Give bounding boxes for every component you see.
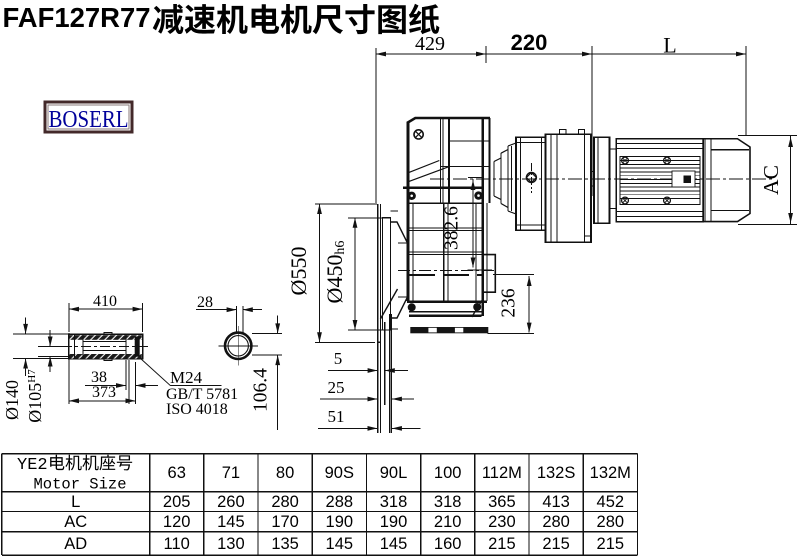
svg-text:112M: 112M [482, 464, 522, 482]
svg-text:145: 145 [326, 535, 354, 553]
svg-text:90S: 90S [325, 464, 354, 482]
svg-text:28: 28 [197, 294, 213, 311]
svg-text:410: 410 [93, 293, 117, 310]
svg-text:Ø450h6: Ø450h6 [322, 241, 348, 304]
svg-text:160: 160 [434, 535, 462, 553]
svg-text:280: 280 [597, 513, 625, 531]
svg-text:51: 51 [328, 407, 345, 426]
svg-text:215: 215 [488, 535, 516, 553]
svg-text:452: 452 [597, 493, 625, 511]
svg-text:145: 145 [217, 513, 245, 531]
svg-text:63: 63 [168, 464, 186, 482]
svg-text:210: 210 [434, 513, 462, 531]
svg-text:Ø140: Ø140 [2, 380, 22, 420]
svg-text:215: 215 [542, 535, 570, 553]
svg-text:413: 413 [542, 493, 570, 511]
svg-text:132M: 132M [590, 464, 631, 482]
svg-text:L: L [71, 493, 80, 511]
svg-text:373: 373 [92, 384, 116, 401]
svg-text:230: 230 [488, 513, 516, 531]
svg-text:L: L [663, 33, 676, 58]
svg-text:100: 100 [434, 464, 462, 482]
svg-text:Motor Size: Motor Size [34, 476, 127, 494]
svg-text:429: 429 [415, 33, 445, 55]
svg-text:318: 318 [380, 493, 408, 511]
svg-text:382.6: 382.6 [442, 206, 463, 250]
svg-text:AC: AC [64, 513, 87, 531]
svg-text:135: 135 [271, 535, 299, 553]
svg-text:Ø550: Ø550 [286, 247, 311, 296]
svg-text:ISO 4018: ISO 4018 [166, 401, 228, 418]
svg-text:BOSERL: BOSERL [49, 107, 129, 133]
svg-text:190: 190 [380, 513, 408, 531]
svg-text:YE2: YE2 [17, 456, 48, 475]
svg-text:FAF127R77: FAF127R77 [3, 2, 151, 33]
svg-text:106.4: 106.4 [251, 368, 272, 412]
svg-text:25: 25 [328, 378, 345, 397]
svg-text:260: 260 [217, 493, 245, 511]
svg-text:288: 288 [326, 493, 354, 511]
svg-text:205: 205 [163, 493, 191, 511]
svg-text:71: 71 [222, 464, 240, 482]
svg-text:AD: AD [64, 535, 87, 553]
svg-text:130: 130 [217, 535, 245, 553]
svg-text:Ø105H7: Ø105H7 [25, 369, 45, 423]
svg-text:M24: M24 [170, 368, 203, 387]
svg-text:90L: 90L [380, 464, 408, 482]
svg-text:AC: AC [759, 165, 783, 195]
svg-text:280: 280 [542, 513, 570, 531]
svg-text:145: 145 [380, 535, 408, 553]
svg-text:220: 220 [511, 30, 548, 55]
svg-text:170: 170 [271, 513, 299, 531]
svg-text:120: 120 [163, 513, 191, 531]
svg-text:236: 236 [499, 288, 520, 318]
svg-text:80: 80 [276, 464, 294, 482]
svg-text:215: 215 [597, 535, 625, 553]
svg-text:318: 318 [434, 493, 462, 511]
svg-text:365: 365 [488, 493, 516, 511]
svg-text:110: 110 [164, 535, 190, 553]
svg-text:280: 280 [271, 493, 299, 511]
svg-text:132S: 132S [537, 464, 576, 482]
svg-text:190: 190 [326, 513, 354, 531]
svg-text:5: 5 [334, 349, 343, 368]
